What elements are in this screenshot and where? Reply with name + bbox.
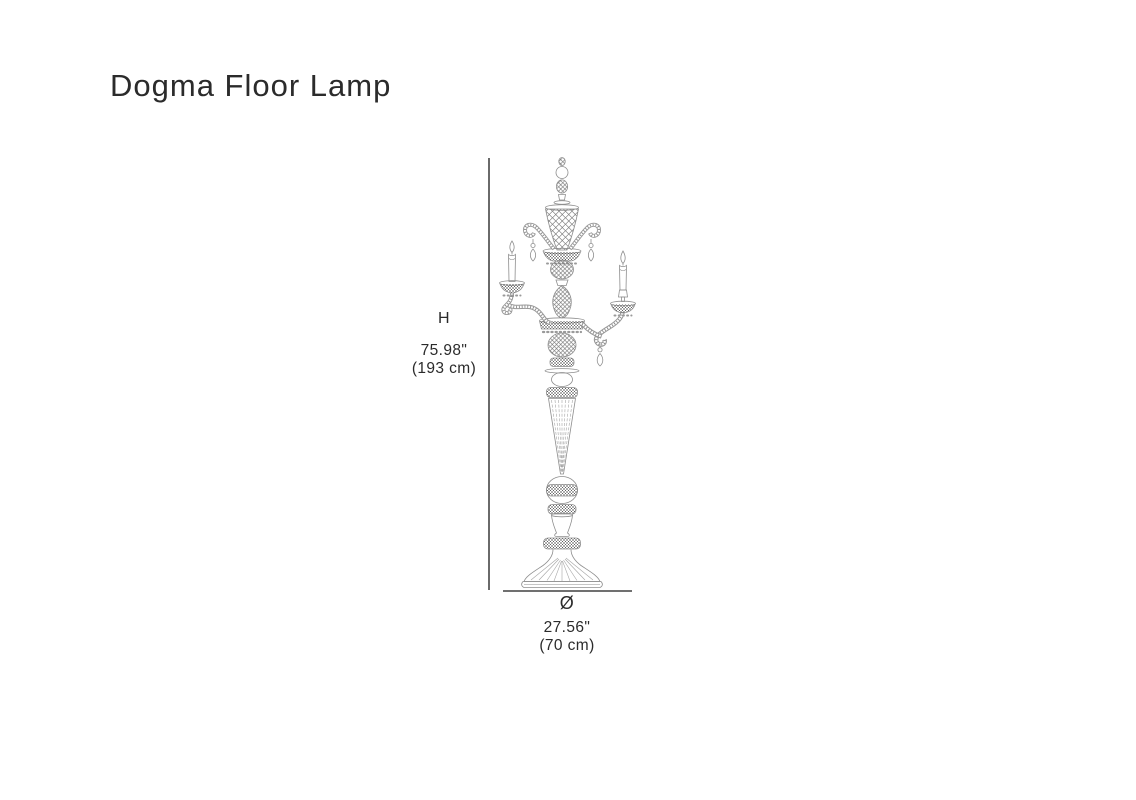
diameter-inches: 27.56" (507, 619, 627, 637)
height-letter: H (384, 310, 504, 328)
trumpet-top (543, 205, 581, 264)
crystal-pendant-left (530, 239, 535, 261)
finial (554, 158, 570, 205)
upper-column (551, 260, 574, 318)
fluted-cone-stem (549, 399, 576, 475)
candle-left (500, 241, 525, 297)
diameter-symbol-icon: Ø (507, 593, 627, 614)
candle-arm-left (503, 296, 550, 323)
lower-column (545, 333, 579, 398)
flame-left (510, 241, 514, 253)
height-dimension-label: H 75.98" (193 cm) (384, 310, 504, 378)
height-metric: (193 cm) (384, 360, 504, 378)
lamp-technical-drawing (0, 0, 1136, 800)
base-stack (522, 477, 603, 588)
crystal-pendant-arm-right (597, 344, 603, 366)
spec-sheet-page: Dogma Floor Lamp (0, 0, 1136, 800)
lamp-sketch (500, 158, 636, 588)
candle-right (611, 251, 636, 316)
crystal-pendant-right (588, 239, 593, 261)
diameter-metric: (70 cm) (507, 637, 627, 655)
height-inches: 75.98" (384, 342, 504, 360)
candle-arm-right (581, 312, 623, 366)
flame-right (621, 251, 625, 264)
diameter-dimension-label: Ø 27.56" (70 cm) (507, 593, 627, 655)
